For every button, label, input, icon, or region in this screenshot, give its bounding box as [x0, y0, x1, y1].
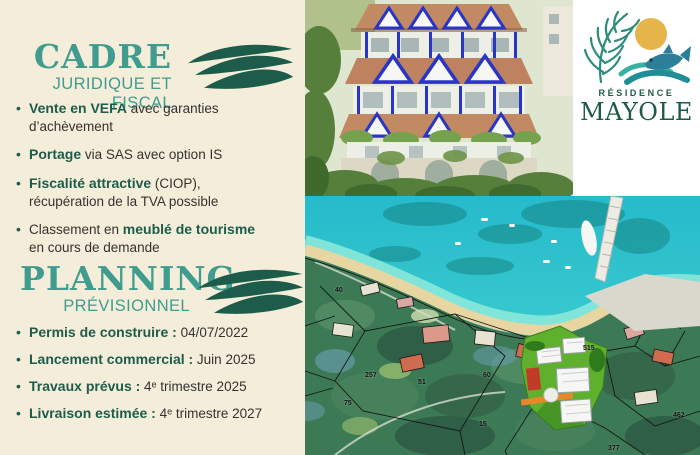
logo-art	[579, 8, 694, 86]
parcel-label: 15	[479, 421, 487, 428]
parcel-label: 377	[608, 445, 620, 452]
list-item: • Travaux prévus : 4ᵉ trimestre 2025	[16, 378, 302, 396]
list-item: • Livraison estimée : 4ᵉ trimestre 2027	[16, 405, 302, 423]
parcel-label: 257	[365, 372, 377, 379]
planning-title: PLANNING	[20, 262, 190, 295]
parcel-label: 75	[344, 400, 352, 407]
bullet-icon: •	[16, 146, 29, 164]
logo-brand-name: MAYOLE	[573, 98, 700, 126]
slide: CADRE JURIDIQUE ET FISCAL • Vente en VEF…	[0, 0, 700, 455]
brand-logo: RÉSIDENCE MAYOLE	[573, 0, 700, 196]
parcel-label: 462	[673, 412, 685, 419]
list-item: • Vente en VEFA avec garanties d’achèvem…	[16, 100, 302, 135]
list-item: • Classement en meublé de tourismeen cou…	[16, 221, 302, 256]
list-item: • Fiscalité attractive (CIOP),récupérati…	[16, 175, 302, 210]
info-panel: CADRE JURIDIQUE ET FISCAL • Vente en VEF…	[0, 0, 305, 455]
parcel-label: 51	[418, 379, 426, 386]
logo-residence-label: RÉSIDENCE	[573, 88, 700, 98]
planning-header: PLANNING PRÉVISIONNEL	[20, 262, 190, 316]
bullet-icon: •	[16, 378, 29, 396]
bullet-icon: •	[16, 100, 29, 135]
cadre-bullet-list: • Vente en VEFA avec garanties d’achèvem…	[16, 100, 302, 267]
cadre-title: CADRE	[18, 40, 172, 73]
parcel-label: 40	[335, 287, 343, 294]
bullet-icon: •	[16, 221, 29, 256]
palm-icon	[585, 12, 639, 82]
list-item: • Permis de construire : 04/07/2022	[16, 324, 302, 342]
bullet-icon: •	[16, 405, 29, 423]
list-item: • Portage via SAS avec option IS	[16, 146, 302, 164]
parcel-label: 515	[583, 345, 595, 352]
planning-subtitle: PRÉVISIONNEL	[20, 297, 190, 316]
bullet-icon: •	[16, 175, 29, 210]
aerial-map-art	[305, 196, 700, 455]
planning-bullet-list: • Permis de construire : 04/07/2022 • La…	[16, 324, 302, 432]
bullet-icon: •	[16, 324, 29, 342]
building-render-art	[305, 0, 573, 196]
aerial-map-image: 257 51 60 75 15 515 377 462 40	[305, 196, 700, 455]
waves-icon	[184, 40, 296, 94]
sun-icon	[635, 18, 667, 50]
building-render-image	[305, 0, 573, 196]
waves-icon	[196, 264, 304, 320]
parcel-label: 60	[483, 372, 491, 379]
bullet-icon: •	[16, 351, 29, 369]
list-item: • Lancement commercial : Juin 2025	[16, 351, 302, 369]
